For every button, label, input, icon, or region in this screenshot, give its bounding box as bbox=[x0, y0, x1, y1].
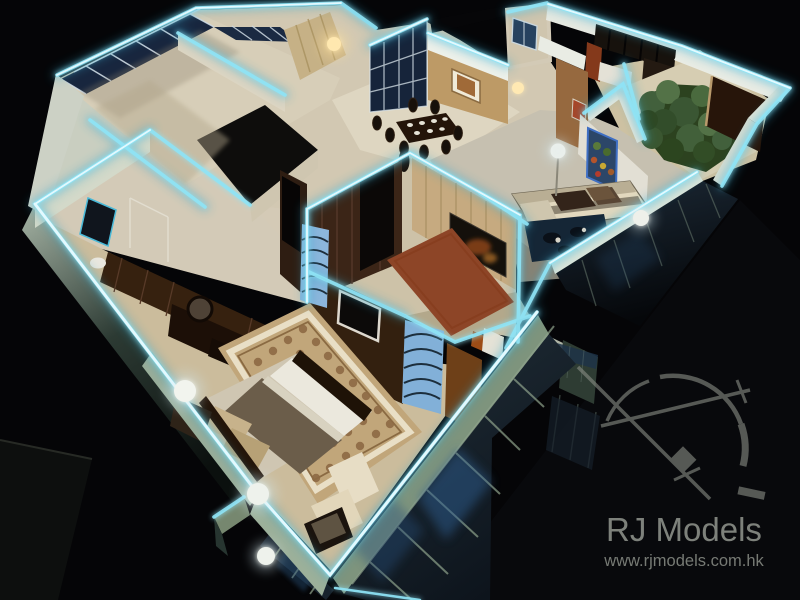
svg-text:www.rjmodels.com.hk: www.rjmodels.com.hk bbox=[603, 552, 764, 570]
svg-text:RJ Models: RJ Models bbox=[606, 511, 762, 548]
